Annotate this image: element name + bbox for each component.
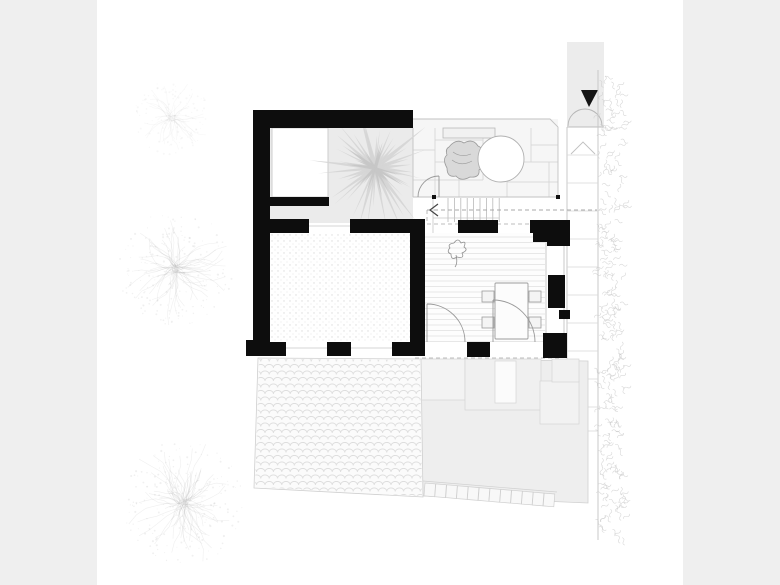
tree-foliage-dot	[166, 234, 167, 235]
tree-foliage-dot	[170, 144, 172, 146]
tree-foliage-dot	[157, 84, 158, 85]
garden-bed	[420, 359, 465, 400]
tree-foliage-dot	[190, 508, 191, 509]
tree-foliage-dot	[223, 269, 224, 270]
hedge-scribble	[607, 382, 611, 390]
hedge-scribble	[613, 307, 621, 312]
tree-foliage-dot	[138, 298, 139, 299]
hedge-scribble	[609, 499, 617, 504]
tree-branch	[177, 246, 227, 269]
tree-foliage-dot	[185, 547, 187, 549]
tree-foliage-dot	[209, 481, 211, 483]
tree-foliage-dot	[149, 528, 151, 530]
dining-table	[495, 283, 528, 339]
bench	[443, 128, 495, 138]
tree-foliage-dot	[172, 140, 173, 141]
hedge-scribble	[615, 431, 623, 435]
hedge-scribble	[595, 265, 603, 271]
sketch-trees	[119, 84, 242, 563]
tree-foliage-dot	[147, 498, 148, 499]
tree-foliage-dot	[201, 501, 202, 502]
tree-foliage-dot	[198, 259, 199, 260]
hedge-scribble	[617, 535, 622, 543]
garden-bed	[540, 381, 579, 424]
tree-foliage-dot	[196, 109, 198, 111]
tree-foliage-dot	[223, 535, 225, 537]
tree-foliage-dot	[197, 132, 198, 133]
tree-foliage-dot	[157, 255, 159, 257]
wall-south-b	[327, 342, 351, 356]
tree-foliage-dot	[187, 463, 189, 465]
tree-foliage-dot	[172, 129, 173, 130]
tree-foliage-dot	[169, 238, 170, 239]
tree-foliage-dot	[130, 238, 132, 240]
tree-foliage-dot	[204, 522, 205, 523]
tree-foliage-dot	[186, 310, 188, 312]
hedge-scribble	[621, 537, 626, 545]
tree-foliage-dot	[179, 448, 180, 449]
tree-foliage-dot	[231, 525, 233, 527]
pier-northeast-b	[533, 222, 567, 242]
tree-foliage-dot	[156, 537, 158, 539]
tree-foliage-dot	[169, 115, 170, 116]
pier-east-notch	[559, 310, 570, 319]
tree-foliage-dot	[162, 215, 163, 216]
tree-foliage-dot	[173, 487, 175, 489]
tree-foliage-dot	[126, 292, 128, 294]
tree-foliage-dot	[171, 287, 173, 289]
tree-foliage-dot	[197, 140, 198, 141]
paving-tile	[435, 484, 447, 498]
tree-foliage-dot	[143, 305, 145, 307]
tree-foliage-dot	[128, 268, 129, 269]
tree-foliage-dot	[176, 488, 177, 489]
tree-foliage-dot	[213, 306, 215, 308]
tree-foliage-dot	[140, 307, 142, 309]
tree-foliage-dot	[189, 323, 190, 324]
tree-foliage-dot	[158, 494, 160, 496]
hedge-scribble	[600, 239, 605, 247]
tree-foliage-dot	[157, 132, 159, 134]
tree-foliage-dot	[165, 270, 167, 272]
tree-foliage-dot	[168, 250, 170, 252]
tree-foliage-dot	[195, 128, 197, 130]
tree-foliage-dot	[157, 549, 158, 550]
hedge-scribble	[603, 468, 606, 476]
hedge-scribble	[606, 393, 614, 398]
tree-foliage-dot	[173, 481, 174, 482]
tree-foliage-dot	[134, 233, 136, 235]
hedge-scribble	[601, 337, 609, 341]
tree-foliage-dot	[188, 241, 190, 243]
staircase	[427, 195, 597, 233]
scallop-paving	[254, 358, 423, 497]
wall-center	[410, 219, 425, 356]
tree-foliage-dot	[183, 282, 184, 283]
tree-foliage-dot	[156, 486, 158, 488]
tree-foliage-dot	[213, 503, 215, 505]
tree-foliage-dot	[204, 259, 205, 260]
hedge-scribble	[599, 198, 607, 205]
tree-foliage-dot	[189, 491, 190, 492]
tree-foliage-dot	[154, 485, 156, 487]
tree-foliage-dot	[194, 500, 195, 501]
tree-foliage-dot	[172, 228, 173, 229]
tree-foliage-dot	[222, 272, 224, 274]
tree-foliage-dot	[133, 502, 134, 503]
tree-foliage-dot	[162, 515, 163, 516]
tree-foliage-dot	[144, 310, 146, 312]
tree-foliage-dot	[175, 473, 176, 474]
tree-foliage-dot	[232, 486, 234, 488]
tree-foliage-dot	[159, 482, 161, 484]
tree-foliage-dot	[218, 275, 219, 276]
tree-foliage-dot	[162, 236, 164, 238]
tree-foliage-dot	[203, 513, 205, 515]
wall-dining-north-a	[458, 220, 498, 233]
hedge-scribble	[622, 498, 630, 502]
tree-foliage-dot	[150, 245, 152, 247]
paving-tile	[500, 489, 512, 503]
tree-foliage-dot	[154, 494, 156, 496]
tree-foliage-dot	[165, 318, 166, 319]
tree-foliage-dot	[222, 484, 224, 486]
tree-foliage-dot	[151, 253, 153, 255]
hedge-scribble	[600, 256, 608, 262]
tree-branch	[175, 105, 176, 116]
tree-foliage-dot	[152, 533, 153, 534]
tree-foliage-dot	[156, 544, 158, 546]
tree-foliage-dot	[173, 466, 174, 467]
tree-foliage-dot	[152, 276, 153, 277]
tree-foliage-dot	[179, 142, 180, 143]
hedge-scribble	[614, 98, 620, 106]
dining-chair	[482, 291, 494, 302]
drawing-canvas	[97, 0, 683, 585]
tree-foliage-dot	[216, 453, 217, 454]
tree-foliage-dot	[173, 459, 175, 461]
tree-foliage-dot	[184, 127, 186, 129]
tree-foliage-dot	[174, 221, 175, 222]
tree-foliage-dot	[197, 480, 198, 481]
paving-tile	[467, 487, 479, 501]
tree-foliage-dot	[197, 274, 199, 276]
tree-foliage-dot	[150, 254, 151, 255]
hedge-scribble	[604, 160, 607, 168]
hedge-scribble	[607, 149, 615, 155]
tree-foliage-dot	[155, 313, 157, 315]
tree-foliage-dot	[183, 541, 184, 542]
tree-foliage-dot	[191, 96, 192, 97]
tree-foliage-dot	[168, 489, 169, 490]
pier-southeast	[543, 333, 567, 358]
tree-foliage-dot	[179, 493, 180, 494]
paving-tile	[478, 488, 490, 502]
tree-foliage-dot	[136, 502, 138, 504]
tree-foliage-dot	[156, 299, 158, 301]
tree-foliage-dot	[168, 103, 170, 105]
tree-foliage-dot	[172, 116, 173, 117]
hedge-scribble	[601, 444, 604, 452]
hedge-scribble	[623, 385, 631, 391]
hedge-scribble	[609, 205, 613, 213]
tree-foliage-dot	[128, 275, 129, 276]
tree-foliage-dot	[202, 300, 204, 302]
tree-foliage-dot	[185, 97, 187, 99]
tree-foliage-dot	[138, 131, 139, 132]
paving-tile	[489, 489, 501, 503]
tree-foliage-dot	[119, 258, 121, 260]
hedge-scribble	[598, 225, 606, 230]
hedge-scribble	[620, 302, 628, 306]
tree-foliage-dot	[182, 515, 184, 517]
tree-foliage-dot	[179, 291, 180, 292]
tree-foliage-dot	[161, 89, 162, 90]
tree-foliage-dot	[216, 234, 218, 236]
hedge-scribble	[621, 122, 629, 128]
tree-foliage-dot	[221, 521, 223, 523]
tree-foliage-dot	[165, 481, 167, 483]
tree-foliage-dot	[141, 103, 142, 104]
hedge-scribble	[624, 205, 632, 208]
tree-foliage-dot	[169, 317, 171, 319]
tree-foliage-dot	[219, 486, 220, 487]
tree-foliage-dot	[184, 253, 186, 255]
paving-tile	[424, 483, 436, 497]
tree-foliage-dot	[198, 489, 200, 491]
tree-foliage-dot	[141, 503, 142, 504]
tree-foliage-dot	[159, 468, 160, 469]
tree-foliage-dot	[168, 91, 170, 93]
tree-branch	[186, 472, 192, 500]
tree-foliage-dot	[158, 105, 159, 106]
tree-foliage-dot	[155, 246, 157, 248]
tree-foliage-dot	[174, 115, 176, 117]
tree-foliage-dot	[147, 227, 148, 228]
hedge-scribble	[599, 317, 607, 321]
tree-foliage-dot	[132, 271, 133, 272]
tree-foliage-dot	[225, 276, 226, 277]
tree-foliage-dot	[190, 500, 192, 502]
tree-foliage-dot	[162, 127, 164, 129]
hedge-scribble	[606, 152, 614, 159]
hedge-scribble	[612, 293, 620, 297]
tree-foliage-dot	[135, 486, 137, 488]
hedge-scribble	[619, 471, 625, 479]
tree-foliage-dot	[167, 142, 168, 143]
hedge-scribble	[596, 241, 603, 249]
hedge-scribble	[619, 372, 627, 379]
tree-foliage-dot	[146, 271, 147, 272]
tree-foliage-dot	[184, 89, 185, 90]
tree-foliage-dot	[200, 128, 201, 129]
tree-foliage-dot	[144, 94, 146, 96]
tree-foliage-dot	[187, 500, 188, 501]
tree-foliage-dot	[156, 310, 158, 312]
tree-foliage-dot	[157, 275, 158, 276]
tree-foliage-dot	[156, 263, 157, 264]
hedge-scribble	[593, 367, 600, 374]
tree-branch	[170, 84, 188, 116]
tree-foliage-dot	[202, 280, 204, 282]
tree-foliage-dot	[188, 116, 189, 117]
tree-foliage-dot	[191, 142, 192, 143]
tree-foliage-dot	[225, 503, 227, 505]
hedge-scribble	[604, 250, 612, 253]
tree-foliage-dot	[231, 278, 233, 280]
hedge-scribble	[606, 108, 614, 111]
tree-foliage-dot	[190, 263, 191, 264]
tree-foliage-dot	[189, 95, 190, 96]
tree-foliage-dot	[215, 263, 216, 264]
tree-foliage-dot	[155, 555, 156, 556]
dining-chair	[482, 317, 494, 328]
tree-foliage-dot	[211, 505, 212, 506]
tree-foliage-dot	[192, 103, 194, 105]
tree-foliage-dot	[136, 110, 137, 111]
hedge-scribble	[606, 461, 614, 467]
tree-foliage-dot	[154, 455, 155, 456]
hedge-scribble	[617, 81, 625, 88]
tree-foliage-dot	[146, 472, 147, 473]
tree-foliage-dot	[142, 313, 143, 314]
hedge-scribble	[592, 267, 600, 273]
tree-foliage-dot	[130, 475, 132, 477]
hedge-scribble	[613, 321, 617, 329]
tree-foliage-dot	[175, 91, 177, 93]
tree-foliage-dot	[147, 287, 148, 288]
hedge-scribble	[613, 198, 617, 206]
hedge-scribble	[599, 236, 607, 240]
hedge-scribble	[607, 119, 615, 123]
tree-foliage-dot	[216, 241, 218, 243]
tree-foliage-dot	[237, 521, 239, 523]
tree-foliage-dot	[171, 298, 173, 300]
store-room	[272, 128, 328, 197]
hedge-scribble	[613, 255, 621, 261]
tree-foliage-dot	[133, 523, 134, 524]
tree-foliage-dot	[132, 245, 133, 246]
tree-foliage-dot	[126, 287, 127, 288]
tree-foliage-dot	[168, 227, 170, 229]
tree-foliage-dot	[181, 492, 183, 494]
tree-foliage-dot	[178, 312, 180, 314]
tree-foliage-dot	[200, 254, 202, 256]
tree-foliage-dot	[172, 93, 174, 95]
hedge-scribble	[609, 101, 613, 109]
hedge-scribble	[593, 273, 601, 276]
tree-foliage-dot	[182, 267, 183, 268]
hedge-scribble	[598, 371, 606, 375]
tree-branch	[155, 503, 180, 538]
tree-foliage-dot	[220, 548, 221, 549]
tree-foliage-dot	[154, 476, 156, 478]
hedge-scribble	[609, 464, 617, 471]
hedge-scribble	[618, 512, 622, 520]
tree-foliage-dot	[142, 100, 143, 101]
tree-foliage-dot	[176, 126, 178, 128]
tree-foliage-dot	[163, 504, 164, 505]
tree-foliage-dot	[206, 284, 207, 285]
hedge-scribble	[611, 405, 619, 412]
tree-foliage-dot	[173, 232, 175, 234]
hedge-scribble	[620, 474, 628, 477]
tree-foliage-dot	[192, 118, 193, 119]
paving-tile	[511, 490, 523, 504]
tree-foliage-dot	[180, 93, 181, 94]
tree-foliage-dot	[168, 113, 169, 114]
tree-foliage-dot	[197, 95, 199, 97]
tree-foliage-dot	[144, 262, 145, 263]
tree-foliage-dot	[227, 484, 228, 485]
tree-foliage-dot	[128, 499, 130, 501]
hedge-scribble	[606, 322, 614, 325]
hedge-scribble	[618, 142, 626, 147]
tree-foliage-dot	[137, 476, 138, 477]
tree-foliage-dot	[156, 100, 158, 102]
tree-foliage-dot	[140, 280, 141, 281]
tree-foliage-dot	[181, 147, 183, 149]
tree-foliage-dot	[178, 485, 180, 487]
hedge-scribble	[604, 220, 611, 227]
hedge-scribble	[617, 448, 623, 456]
paving-tile	[543, 493, 555, 507]
tree-foliage-dot	[194, 218, 196, 220]
tree-foliage-dot	[140, 128, 142, 130]
stair-post	[432, 195, 436, 199]
hedge-scribble	[601, 302, 608, 310]
tree-foliage-dot	[215, 250, 216, 251]
tree-foliage-dot	[166, 479, 167, 480]
tree-foliage-dot	[206, 558, 208, 560]
tree-foliage-dot	[217, 478, 218, 479]
hedge-scribble	[614, 219, 622, 223]
hedge-scribble	[609, 509, 612, 517]
hedge-scribble	[623, 363, 631, 368]
hedge-scribble	[599, 142, 606, 149]
round-table	[478, 136, 524, 182]
tree-foliage-dot	[200, 491, 201, 492]
hedge-scribble	[619, 109, 627, 116]
tree-foliage-dot	[176, 450, 177, 451]
tree-foliage-dot	[164, 122, 166, 124]
tree-branch	[184, 505, 203, 561]
tree-foliage-dot	[161, 444, 163, 446]
hedge-scribble	[605, 455, 613, 461]
hedge-scribble	[607, 364, 611, 372]
tree-foliage-dot	[183, 107, 184, 108]
hedge-scribble	[612, 389, 619, 397]
pier-east	[548, 275, 565, 308]
hedge-scribble	[619, 175, 627, 178]
tree-foliage-dot	[132, 293, 134, 295]
tree-foliage-dot	[132, 505, 133, 506]
hedge-scribble	[612, 298, 615, 306]
tree-foliage-dot	[192, 306, 193, 307]
tree-foliage-dot	[176, 295, 177, 296]
tree-foliage-dot	[201, 497, 202, 498]
tree-foliage-dot	[235, 528, 236, 529]
tree-foliage-dot	[125, 249, 126, 250]
tree-foliage-dot	[149, 133, 151, 135]
tree-foliage-dot	[220, 461, 222, 463]
tree-foliage-dot	[190, 135, 192, 137]
hedge-scribble	[598, 209, 606, 215]
tree-foliage-dot	[218, 292, 220, 294]
hedge-scribble	[623, 513, 631, 520]
hedge-scribble	[610, 126, 618, 131]
tree-foliage-dot	[203, 307, 204, 308]
